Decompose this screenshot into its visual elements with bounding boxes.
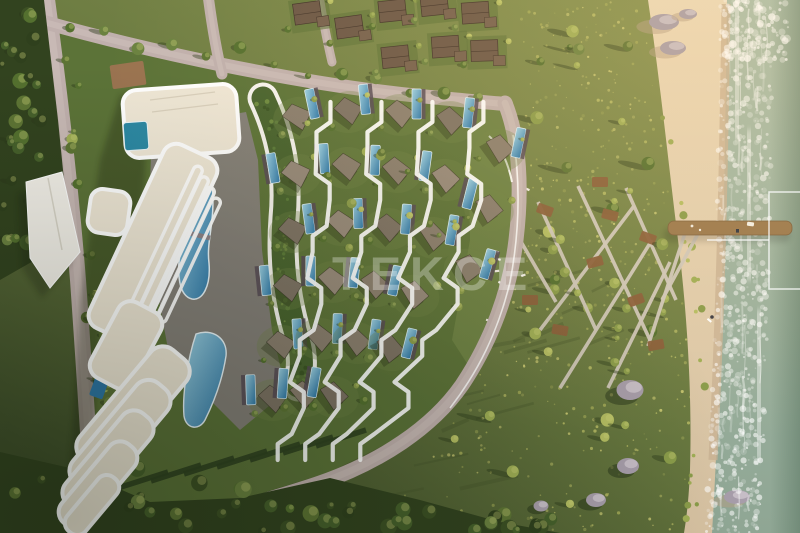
resort-aerial-render: TEKCE	[0, 0, 800, 533]
aerial-render-stage: TEKCE	[0, 0, 800, 533]
watermark-logo-text: TEKCE	[332, 247, 536, 300]
